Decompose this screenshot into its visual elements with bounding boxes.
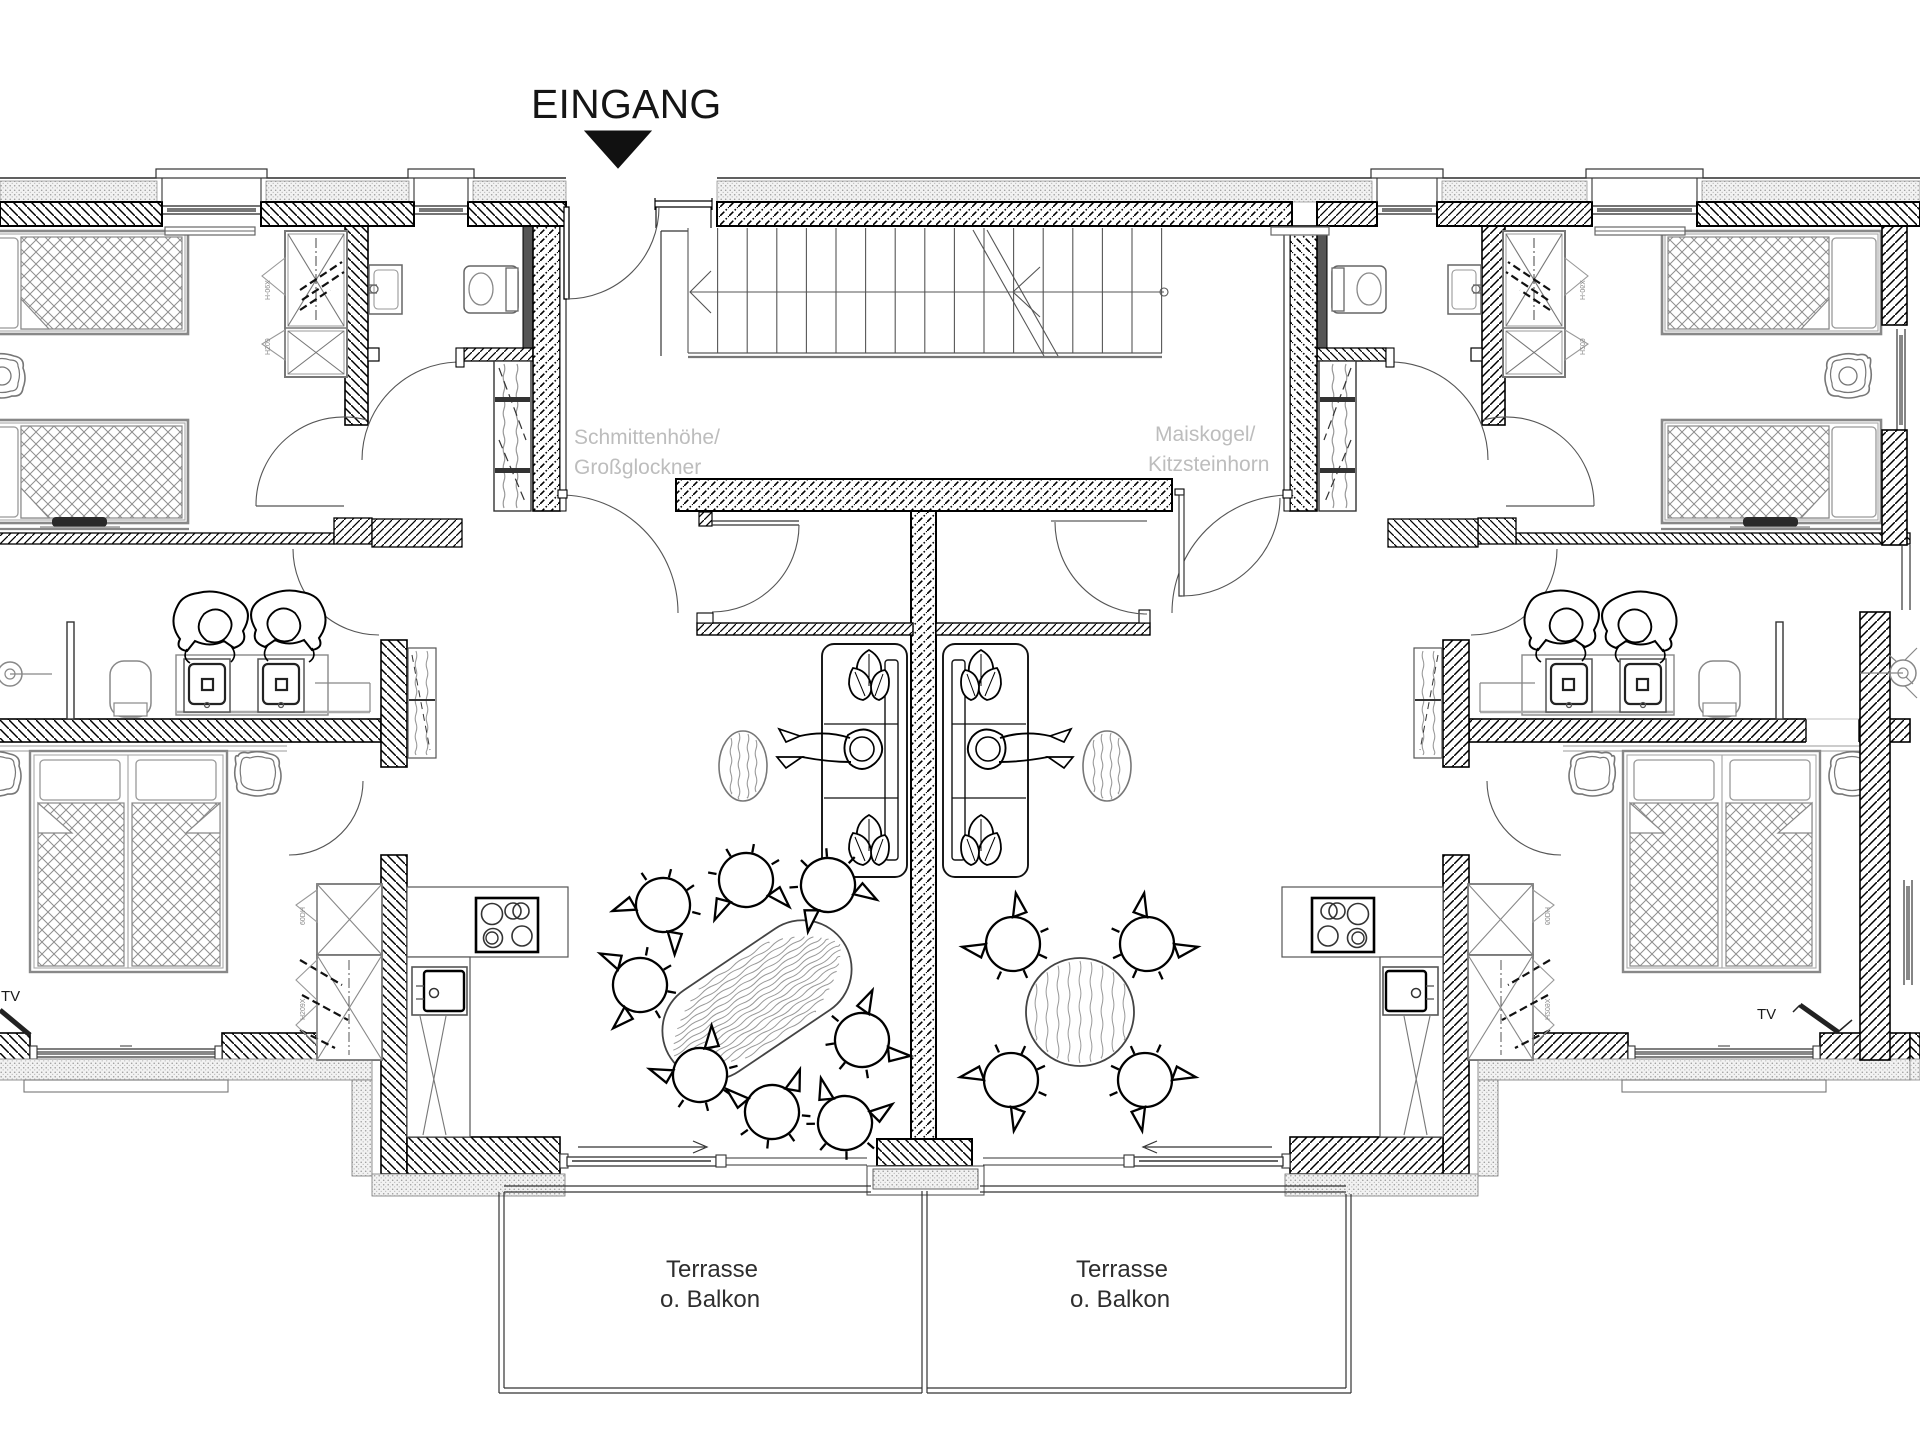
svg-text:o. Balkon: o. Balkon: [1070, 1286, 1170, 1313]
svg-text:TV: TV: [1, 988, 20, 1005]
svg-text:Terrasse: Terrasse: [666, 1256, 758, 1283]
svg-text:Maiskogel/: Maiskogel/: [1155, 423, 1256, 446]
svg-text:Kitzsteinhorn: Kitzsteinhorn: [1148, 453, 1269, 476]
svg-text:o. Balkon: o. Balkon: [660, 1286, 760, 1313]
svg-text:Terrasse: Terrasse: [1076, 1256, 1168, 1283]
svg-text:EINGANG: EINGANG: [531, 81, 722, 127]
svg-text:Schmittenhöhe/: Schmittenhöhe/: [574, 426, 720, 449]
svg-text:Großglockner: Großglockner: [574, 456, 701, 479]
svg-text:TV: TV: [1757, 1006, 1776, 1023]
